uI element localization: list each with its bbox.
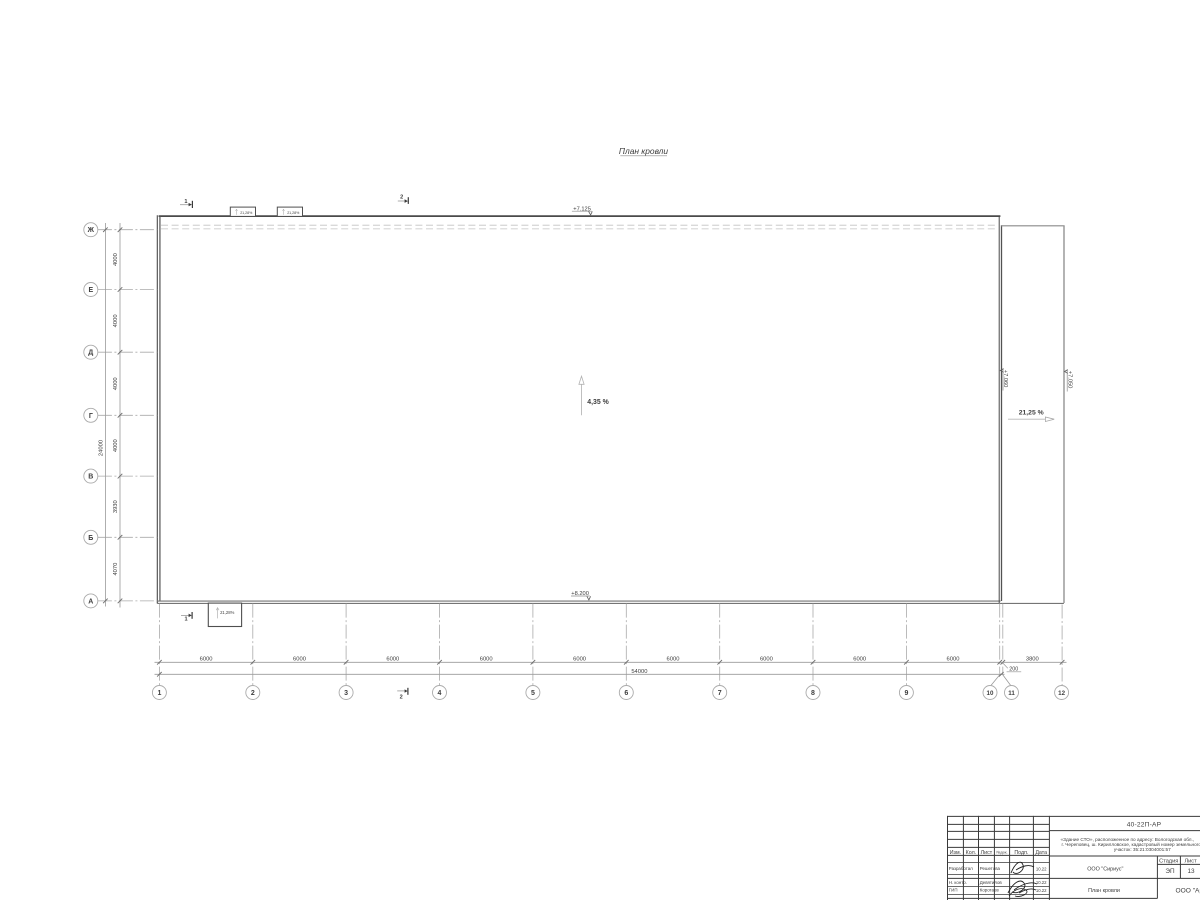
svg-text:3: 3 [344,690,348,697]
svg-text:2: 2 [400,695,403,701]
svg-text:6000: 6000 [667,656,680,662]
svg-text:21,28%: 21,28% [287,211,300,215]
svg-text:Д: Д [88,350,93,357]
svg-text:6000: 6000 [293,656,306,662]
svg-text:4000: 4000 [113,377,119,390]
svg-text:21,25 %: 21,25 % [1019,409,1044,416]
svg-text:Ж: Ж [87,227,95,234]
svg-text:Стадия: Стадия [1159,859,1178,865]
svg-text:ЭП: ЭП [1165,868,1175,875]
svg-text:Кол.: Кол. [966,850,976,856]
svg-text:Разработал: Разработал [949,866,973,871]
svg-text:6: 6 [624,690,628,697]
svg-text:Лист: Лист [1185,859,1198,865]
svg-text:54000: 54000 [631,669,647,675]
svg-text:План кровли: План кровли [619,146,668,156]
svg-text:10.22: 10.22 [1036,866,1047,871]
svg-text:Изм.: Изм. [950,850,961,856]
svg-text:Коротаев: Коротаев [980,888,1000,893]
svg-text:4000: 4000 [113,253,119,266]
svg-text:21,28%: 21,28% [240,211,253,215]
svg-text:участок: 35:21:0304001:57: участок: 35:21:0304001:57 [1114,847,1171,852]
svg-text:№док.: №док. [996,851,1007,855]
svg-text:13: 13 [1187,868,1195,875]
svg-text:5: 5 [531,690,535,697]
svg-text:12: 12 [1058,690,1065,697]
svg-text:9: 9 [904,690,908,697]
svg-text:4,35 %: 4,35 % [587,399,608,406]
svg-text:Г: Г [89,413,93,420]
svg-text:ООО "Сириус": ООО "Сириус" [1087,866,1123,872]
svg-text:3800: 3800 [1026,656,1039,662]
svg-text:6000: 6000 [760,656,773,662]
svg-text:4000: 4000 [113,314,119,327]
svg-text:6000: 6000 [853,656,866,662]
svg-text:2: 2 [251,690,255,697]
svg-text:Дата: Дата [1035,850,1047,856]
svg-text:4000: 4000 [113,439,119,452]
svg-text:10.22: 10.22 [1036,888,1047,893]
svg-text:Н. контр.: Н. контр. [949,880,967,885]
svg-text:Подп.: Подп. [1014,850,1028,856]
svg-text:А: А [88,598,93,605]
svg-text:6000: 6000 [573,656,586,662]
svg-text:40-22П-АР: 40-22П-АР [1127,822,1162,829]
svg-text:Лист: Лист [981,850,993,856]
svg-text:ООО "Арх: ООО "Арх [1176,887,1200,894]
svg-text:План кровли: План кровли [1088,888,1120,894]
svg-text:В: В [88,474,93,481]
svg-text:10: 10 [987,690,994,697]
svg-text:21,28%: 21,28% [220,610,234,615]
svg-text:Б: Б [88,535,93,542]
svg-text:г. Череповец, ш. Кирилловское,: г. Череповец, ш. Кирилловское, кадастров… [1062,841,1200,847]
svg-text:2: 2 [400,194,403,200]
svg-text:10.22: 10.22 [1036,880,1047,885]
svg-text:1: 1 [157,690,161,697]
svg-text:200: 200 [1009,666,1018,672]
svg-text:24000: 24000 [98,440,104,456]
svg-text:1: 1 [184,617,187,623]
svg-text:ГИП: ГИП [949,888,958,893]
svg-text:7: 7 [718,690,722,697]
svg-text:3930: 3930 [113,500,119,513]
svg-text:Е: Е [88,287,93,294]
svg-text:6000: 6000 [386,656,399,662]
svg-text:6000: 6000 [200,656,213,662]
svg-text:4070: 4070 [113,563,119,576]
svg-text:6000: 6000 [480,656,493,662]
svg-text:4: 4 [438,690,442,697]
svg-text:11: 11 [1008,690,1015,697]
svg-text:8: 8 [811,690,815,697]
svg-text:6000: 6000 [947,656,960,662]
svg-text:Девятилов: Девятилов [980,880,1003,885]
svg-text:Решетова: Решетова [980,866,1001,871]
